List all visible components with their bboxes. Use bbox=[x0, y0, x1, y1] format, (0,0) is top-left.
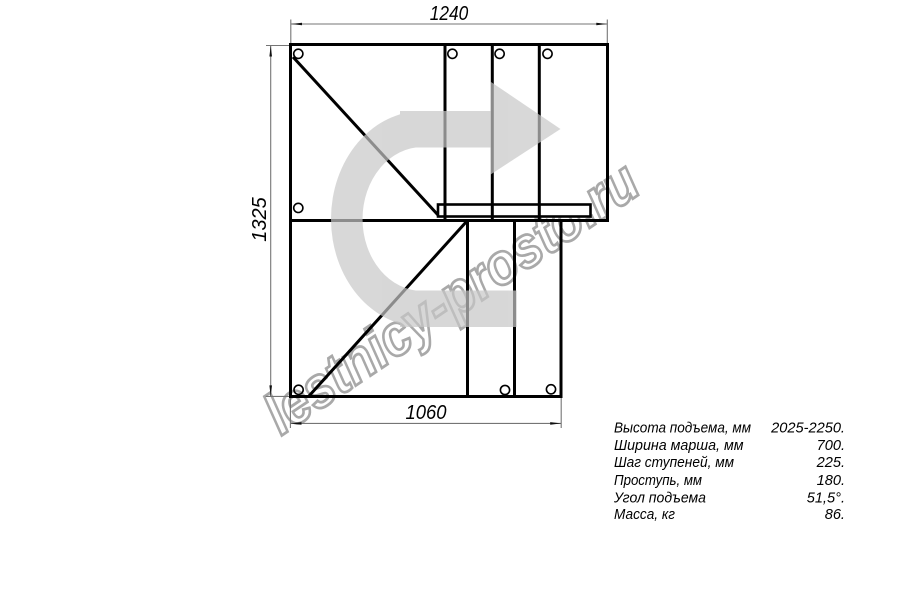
svg-text:Масса, кг: Масса, кг bbox=[614, 507, 675, 523]
svg-text:51,5°.: 51,5°. bbox=[807, 490, 845, 506]
svg-text:1060: 1060 bbox=[406, 402, 447, 424]
svg-text:Проступь, мм: Проступь, мм bbox=[614, 473, 702, 489]
svg-text:1240: 1240 bbox=[430, 3, 469, 25]
svg-text:180.: 180. bbox=[817, 473, 845, 489]
svg-text:Ширина марша, мм: Ширина марша, мм bbox=[614, 438, 744, 454]
svg-text:Угол подъема: Угол подъема bbox=[613, 490, 706, 506]
svg-text:2025-2250.: 2025-2250. bbox=[770, 421, 845, 437]
svg-text:225.: 225. bbox=[816, 455, 845, 471]
svg-text:1325: 1325 bbox=[249, 196, 271, 241]
svg-text:86.: 86. bbox=[825, 507, 845, 523]
svg-text:700.: 700. bbox=[817, 438, 845, 454]
svg-text:Высота подъема, мм: Высота подъема, мм bbox=[614, 421, 751, 437]
svg-text:Шаг ступеней, мм: Шаг ступеней, мм bbox=[614, 455, 734, 471]
